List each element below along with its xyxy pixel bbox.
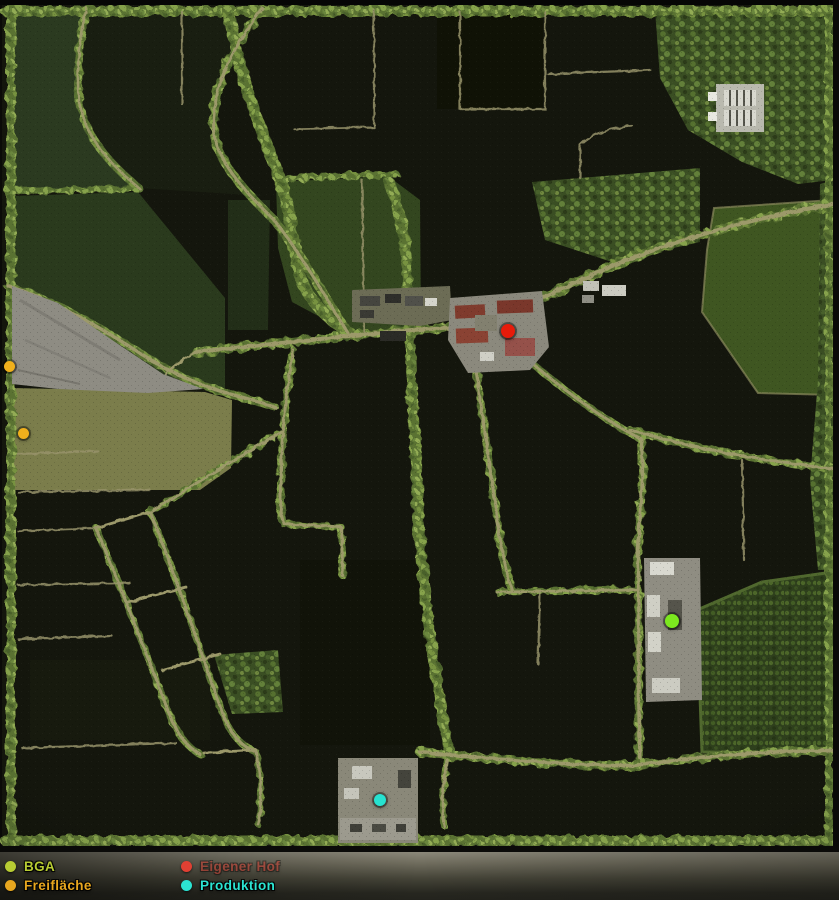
map-marker-freiflaeche[interactable] [4, 361, 15, 372]
legend-item-freiflaeche: Freifläche [5, 879, 92, 893]
legend-item-produktion: Produktion [181, 879, 275, 893]
marker-layer [0, 0, 839, 852]
map-marker-bga[interactable] [665, 614, 679, 628]
legend-bar: BGA Freifläche Eigener Hof Produktion [0, 852, 839, 900]
map-marker-freiflaeche[interactable] [18, 428, 29, 439]
legend-label-eigener-hof: Eigener Hof [200, 860, 280, 874]
legend-label-freiflaeche: Freifläche [24, 879, 92, 893]
bga-dot-icon [5, 861, 16, 872]
produktion-dot-icon [181, 880, 192, 891]
eigener-hof-dot-icon [181, 861, 192, 872]
pda-map-screen: { "legend": { "items": [ {"id": "bga", "… [0, 0, 839, 900]
legend-item-eigener-hof: Eigener Hof [181, 860, 280, 874]
legend-label-produktion: Produktion [200, 879, 275, 893]
freiflaeche-dot-icon [5, 880, 16, 891]
map-marker-eigener-hof[interactable] [501, 324, 515, 338]
legend-label-bga: BGA [24, 860, 55, 874]
legend-item-bga: BGA [5, 860, 55, 874]
map-canvas[interactable] [0, 0, 839, 852]
map-marker-produktion[interactable] [374, 794, 386, 806]
